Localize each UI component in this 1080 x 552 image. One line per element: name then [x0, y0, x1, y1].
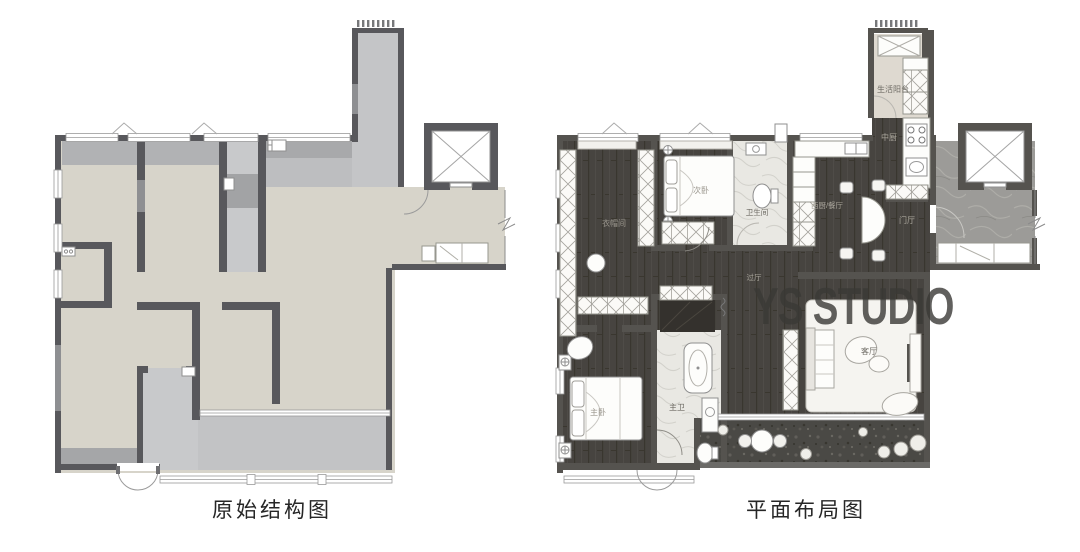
balcony-floor [700, 418, 930, 467]
balcony-outer-wall [700, 462, 930, 468]
elevator-icon [432, 131, 490, 187]
hall-cabinet [783, 330, 798, 410]
elevator-icon-right [966, 131, 1024, 187]
right-floor-plan: YS STUDIO 生活阳台 中厨 次卧 卫生间 西厨/餐厅 门厅 衣帽间 过厅… [556, 20, 1045, 490]
left-plan-caption: 原始结构图 [122, 494, 422, 524]
basin-icon [746, 143, 766, 155]
left-bench [422, 243, 488, 263]
toilet-icon [753, 184, 771, 208]
patio-table-icon [751, 430, 773, 452]
svg-text:YS STUDIO: YS STUDIO [753, 277, 954, 335]
entry-double-door [116, 463, 160, 490]
shoe-cabinet [886, 185, 928, 199]
stove-icon [903, 118, 930, 188]
toilet-icon-2 [697, 443, 713, 463]
sofa-icon [806, 328, 815, 390]
corridor-bench [938, 243, 1030, 263]
vanity-icon [702, 398, 718, 432]
basket-icon [587, 254, 605, 272]
vent-arcs-right [602, 123, 713, 134]
vent-arcs [112, 123, 217, 134]
left-small-room [142, 368, 198, 470]
left-balcony [198, 414, 392, 470]
tv-cabinet [910, 334, 921, 392]
wardrobe [662, 222, 714, 244]
plans-drawing: YS STUDIO 生活阳台 中厨 次卧 卫生间 西厨/餐厅 门厅 衣帽间 过厅… [0, 0, 1080, 552]
vent-ticks-right [875, 20, 917, 27]
floor-plan-sheet: YS STUDIO 生活阳台 中厨 次卧 卫生间 西厨/餐厅 门厅 衣帽间 过厅… [0, 0, 1080, 552]
left-floor-plan [54, 20, 515, 490]
right-plan-caption: 平面布局图 [656, 494, 956, 524]
watermark: YS STUDIO [753, 277, 954, 335]
left-shaft [352, 32, 404, 187]
vent-ticks [357, 20, 394, 27]
tv-icon [907, 344, 910, 382]
